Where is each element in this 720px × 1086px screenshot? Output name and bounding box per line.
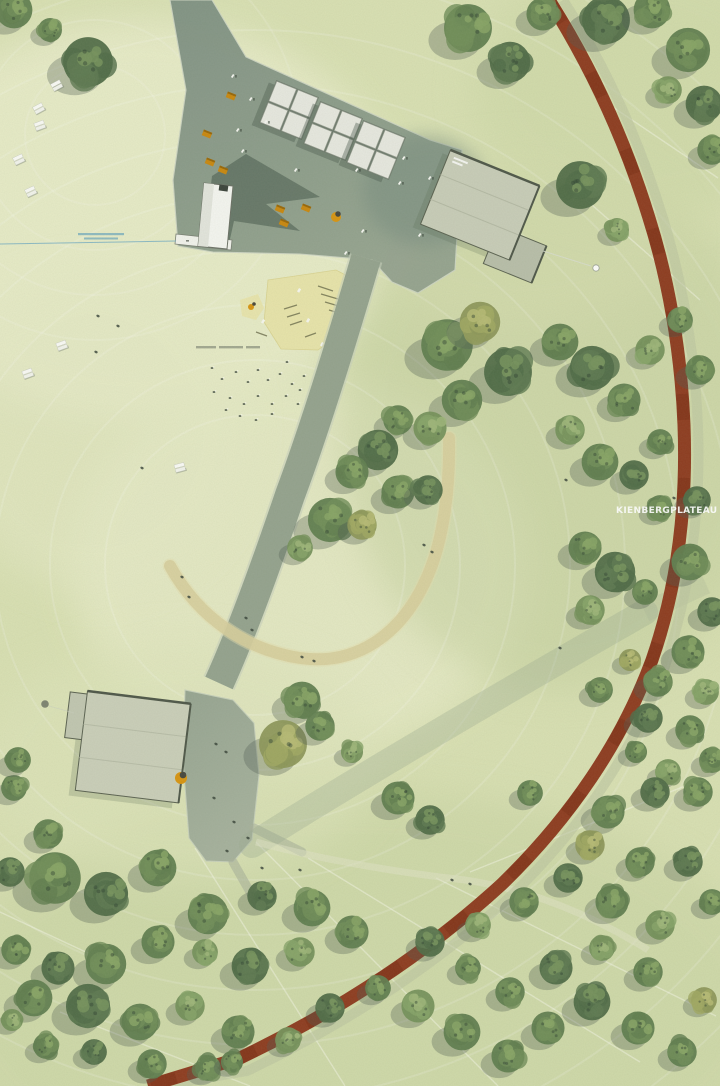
survey-dot	[41, 700, 49, 708]
survey-dot	[593, 265, 599, 271]
site-plan: KIENBERGPLATEAU M 1:250	[0, 0, 720, 1086]
microtext	[219, 346, 243, 348]
lower-building	[58, 689, 191, 809]
site-plan-canvas: KIENBERGPLATEAU M 1:250	[0, 0, 720, 1086]
microtext	[78, 233, 124, 235]
microtext	[246, 346, 260, 348]
microtext	[84, 238, 118, 240]
plan-scale-label: KIENBERGPLATEAU M 1:250	[616, 506, 720, 516]
microtext	[196, 346, 216, 348]
